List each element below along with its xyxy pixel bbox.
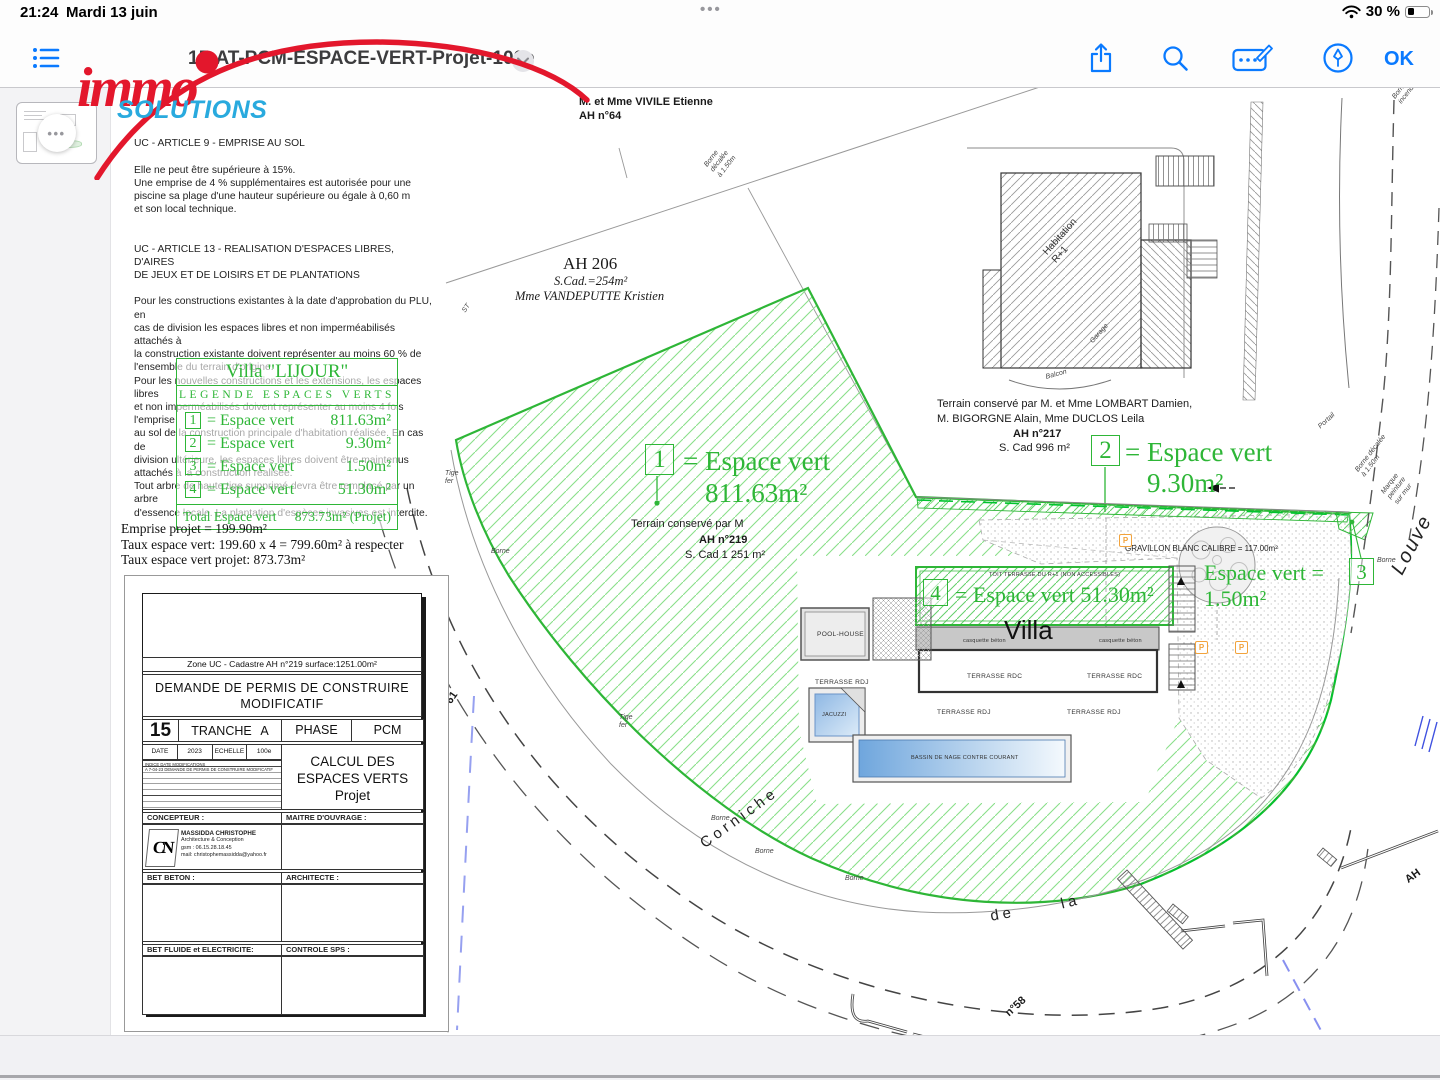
legend-value: 811.63m² — [330, 412, 391, 430]
phase-label: PHASE — [281, 719, 352, 742]
architecte-label: ARCHITECTE : — [281, 872, 424, 884]
legend-num: 1 — [185, 412, 201, 429]
plan-label: Villa — [1004, 615, 1053, 646]
cn-architect-logo: CN — [145, 829, 179, 867]
thumbnail-loading-dots: ••• — [38, 114, 76, 152]
plan-label: de — [989, 904, 1016, 926]
modifications-table: INDICE DATE MODIFICATIONS A 7-04-23 DEMA… — [142, 760, 282, 810]
status-bar: 21:24 Mardi 13 juin ••• 30 % — [0, 0, 1440, 26]
legend-subtitle: LEGENDE ESPACES VERTS — [177, 386, 397, 406]
plan-label: Terrain conservé par M — [631, 518, 744, 531]
plan-label: 2 — [1091, 435, 1120, 466]
plan-label: AH — [1403, 867, 1423, 887]
legend-value: 1.50m² — [346, 458, 391, 476]
table-of-contents-button[interactable] — [28, 40, 64, 76]
legend-value: 9.30m² — [346, 435, 391, 453]
title-block: Zone UC - Cadastre AH n°219 surface:1251… — [124, 575, 449, 1032]
moa-box — [281, 824, 424, 870]
architecte-box — [281, 884, 424, 942]
plan-label: Habitation R+1 — [1041, 217, 1089, 266]
controle-sps-label: CONTROLE SPS : — [281, 944, 424, 956]
permit-title: DEMANDE DE PERMIS DE CONSTRUIRE MODIFICA… — [142, 674, 422, 717]
plan-label: Terrain conservé par M. et Mme LOMBART D… — [937, 398, 1192, 411]
plan-label: S. Cad 1 251 m² — [685, 549, 765, 562]
concepteur-label: CONCEPTEUR : — [142, 812, 282, 824]
legend-label: = Espace vert — [207, 458, 294, 476]
legend-row: 2 = Espace vert 9.30m² — [185, 432, 391, 455]
drawing-title: CALCUL DES ESPACES VERTS Projet — [281, 744, 424, 810]
markup-button[interactable] — [1231, 40, 1275, 76]
plan-label: 1.50m² — [1204, 586, 1266, 612]
pdf-page[interactable]: M. et Mme VIVILE EtienneAH n°64Borne déc… — [110, 88, 1440, 1035]
chevron-down-icon — [517, 57, 529, 65]
legend-row: 3 = Espace vert 1.50m² — [185, 455, 391, 478]
document-title[interactable]: 15-AT-PCM-ESPACE-VERT-Projet-100e — [188, 48, 535, 70]
page-thumbnail[interactable]: ••• — [16, 102, 97, 164]
plan-label: AH n°219 — [699, 534, 747, 547]
plan-label: n°58 — [1003, 994, 1029, 1019]
plan-label: Balcon — [1045, 368, 1068, 382]
plan-label: Portail — [1317, 412, 1337, 431]
battery-icon — [1405, 6, 1430, 18]
plan-label: TERRASSE RDC — [1087, 673, 1142, 681]
plan-label: Louve — [1387, 511, 1438, 579]
plan-label: casquette béton — [1099, 638, 1142, 645]
plan-label: P — [1195, 641, 1208, 654]
pdf-toolbar: 15-AT-PCM-ESPACE-VERT-Projet-100e — [0, 26, 1440, 88]
share-button[interactable] — [1083, 40, 1119, 76]
bet-fluide-box — [142, 956, 282, 1015]
emprise-notes: Emprise projet = 199.90m² Taux espace ve… — [121, 521, 404, 568]
search-button[interactable] — [1157, 40, 1193, 76]
zone-cadastre: Zone UC - Cadastre AH n°219 surface:1251… — [142, 657, 422, 672]
plan-label: 9.30m² — [1147, 468, 1223, 500]
espaces-verts-legend: Villa "LIJOUR" LEGENDE ESPACES VERTS 1 =… — [176, 358, 398, 530]
plan-label: TERRASSE RDJ — [815, 679, 869, 687]
search-icon — [1161, 44, 1189, 72]
plan-label: = Espace vert — [1125, 437, 1272, 469]
legend-label: = Espace vert — [207, 435, 294, 453]
emprise-line: Taux espace vert: 199.60 x 4 = 799.60m² … — [121, 537, 404, 553]
bet-fluide-label: BET FLUIDE et ELECTRICITE: — [142, 944, 282, 956]
plan-label: Espace vert = — [1204, 560, 1324, 586]
plan-label: Mme VANDEPUTTE Kristien — [515, 289, 664, 304]
list-icon — [32, 46, 60, 70]
plan-label: P — [1119, 534, 1132, 547]
plan-label: AH 206 — [563, 254, 617, 274]
concepteur-box: CN MASSIDDA CHRISTOPHE Architecture & Co… — [142, 824, 282, 870]
ok-button[interactable]: OK — [1384, 48, 1414, 71]
share-icon — [1088, 42, 1114, 74]
multitask-dots-icon: ••• — [700, 1, 722, 18]
article9-title: UC - ARTICLE 9 - EMPRISE AU SOL — [134, 138, 305, 149]
clock: 21:24 — [20, 4, 58, 21]
plan-label: TERRASSE RDJ — [937, 709, 991, 717]
plan-label: Borne — [755, 848, 774, 856]
battery-percent: 30 % — [1366, 3, 1400, 20]
plan-label: M. BIGORGNE Alain, Mme DUCLOS Leila — [937, 413, 1144, 426]
plan-label: JACUZZI — [822, 712, 846, 719]
plan-label: Corniche — [697, 784, 782, 852]
bet-beton-label: BET BETON : — [142, 872, 282, 884]
plan-label: POOL-HOUSE — [817, 631, 864, 639]
annotate-pen-button[interactable] — [1320, 40, 1356, 76]
wifi-icon — [1342, 5, 1361, 19]
legend-num: 2 — [185, 435, 201, 452]
article13-title: UC - ARTICLE 13 - REALISATION D'ESPACES … — [134, 244, 394, 281]
plan-label: TERRASSE RDJ — [1067, 709, 1121, 717]
plan-label: P — [1235, 641, 1248, 654]
title-menu-button[interactable] — [512, 50, 534, 72]
markup-icon — [1232, 43, 1274, 73]
plan-label: 1 — [645, 444, 674, 475]
plan-label: Borne décalée à 1.50m — [1354, 433, 1395, 479]
plan-label: 4 — [923, 579, 948, 606]
legend-row: 4 = Espace vert 51.30m² — [185, 478, 391, 501]
plan-label: AH n°217 — [1013, 428, 1061, 441]
bet-beton-box — [142, 884, 282, 942]
tranche-cell: TRANCHE A — [178, 719, 282, 742]
moa-label: MAITRE D'OUVRAGE : — [281, 812, 424, 824]
plan-label: GRAVILLON BLANC CALIBRE = 117.00m² — [1125, 544, 1278, 553]
plan-label: BASSIN DE NAGE CONTRE COURANT — [911, 755, 1018, 762]
legend-num: 4 — [185, 481, 201, 498]
plan-label: TERRASSE RDC — [967, 673, 1022, 681]
article9-body: Elle ne peut être supérieure à 15%. Une … — [134, 165, 411, 216]
plan-label: = Espace vert 51.30m² — [955, 582, 1154, 608]
controle-sps-box — [281, 956, 424, 1015]
pen-circle-icon — [1322, 42, 1354, 74]
legend-label: = Espace vert — [207, 481, 294, 499]
plan-label: casquette béton — [963, 638, 1006, 645]
legend-value: 51.30m² — [338, 481, 391, 499]
plan-label: Marque peinture sur mur — [1380, 471, 1415, 506]
status-date: Mardi 13 juin — [66, 4, 158, 21]
plan-label: S. Cad 996 m² — [999, 442, 1070, 455]
plan-label: la — [1059, 891, 1082, 913]
phase-value: PCM — [351, 719, 424, 742]
plan-label: Tige fer — [619, 714, 633, 731]
viewer-content: ••• — [0, 88, 1440, 1035]
plan-label: Tige fer — [445, 470, 459, 487]
emprise-line: Taux espace vert projet: 873.73m² — [121, 552, 404, 568]
plan-label: 811.63m² — [705, 478, 807, 510]
plan-label: S.Cad.=254m² — [554, 274, 627, 289]
date-echelle-row: DATE 2023 ECHELLE 100e — [142, 744, 282, 760]
emprise-line: Emprise projet = 199.90m² — [121, 521, 404, 537]
plan-label: = Espace vert — [683, 446, 830, 478]
plan-label: M. et Mme VIVILE Etienne — [579, 96, 713, 109]
legend-row: 1 = Espace vert 811.63m² — [185, 409, 391, 432]
legend-label: = Espace vert — [207, 412, 294, 430]
plan-label: 3 — [1349, 558, 1374, 585]
legend-title: Villa "LIJOUR" — [177, 359, 397, 386]
bottom-bar — [0, 1035, 1440, 1080]
legend-num: 3 — [185, 458, 201, 475]
plan-label: Borne décalée à 1.50m — [703, 144, 738, 179]
sheet-number: 15 — [142, 719, 179, 742]
plan-label: Borne — [491, 548, 510, 556]
plan-label: TOIT TERRASSE DU R+1 (NON ACCESSIBLES) — [989, 572, 1120, 579]
plan-label: AH n°64 — [579, 110, 621, 123]
plan-label: Borne — [845, 875, 864, 883]
plan-label: Garage — [1089, 323, 1111, 346]
plan-label: ST — [461, 303, 473, 315]
